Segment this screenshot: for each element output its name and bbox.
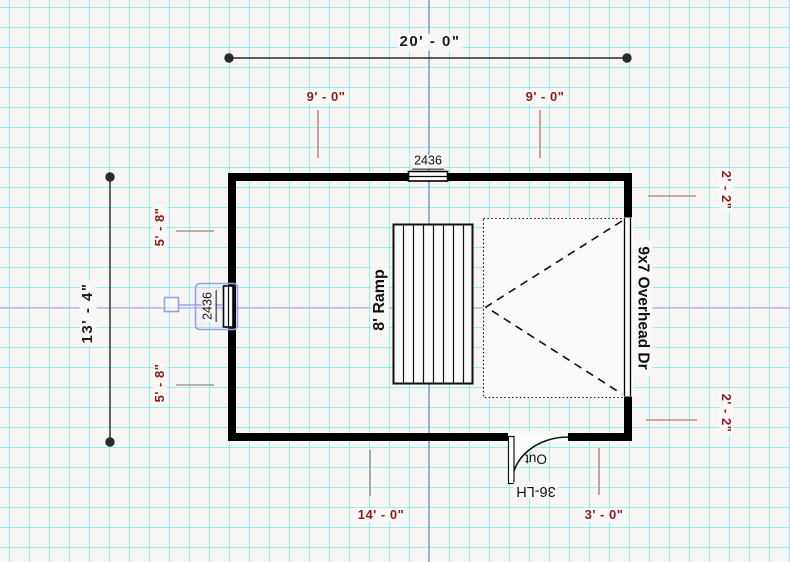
- drawing-canvas[interactable]: 20' - 0" 13' - 4" 9' - 0" 9' - 0" 5' - 8…: [0, 0, 790, 562]
- dimension-overall-height[interactable]: 13' - 4": [80, 280, 97, 345]
- dimension-left-lower-span[interactable]: 5' - 8": [153, 362, 167, 405]
- dimension-right-upper-span[interactable]: 2' - 2": [719, 169, 733, 212]
- dimension-top-left-span[interactable]: 9' - 0": [305, 90, 348, 104]
- dimension-top-right-span[interactable]: 9' - 0": [524, 90, 567, 104]
- width-dimension-line[interactable]: [225, 54, 631, 62]
- ramp-label[interactable]: 8' Ramp: [371, 267, 389, 333]
- ramp[interactable]: [394, 225, 473, 384]
- dimension-left-upper-span[interactable]: 5' - 8": [153, 206, 167, 249]
- top-window[interactable]: [409, 172, 448, 182]
- entry-door-leaf: [509, 437, 515, 484]
- height-dimension-line[interactable]: [106, 173, 114, 446]
- dimension-bottom-right-span[interactable]: 3' - 0": [583, 508, 626, 522]
- left-window-size-label[interactable]: 2436: [202, 290, 217, 322]
- dimension-bottom-left-span[interactable]: 14' - 0": [356, 508, 407, 522]
- top-window-size-label[interactable]: 2436: [412, 155, 444, 170]
- entry-door-swing-label[interactable]: Out: [523, 451, 549, 466]
- dimension-right-lower-span[interactable]: 2' - 2": [719, 392, 733, 435]
- entry-door-size-label[interactable]: 36-LH: [514, 482, 558, 498]
- plan-drawing-layer: [0, 0, 790, 562]
- selection-handle[interactable]: [165, 298, 179, 312]
- dimension-overall-width[interactable]: 20' - 0": [397, 34, 462, 51]
- overhead-door-region[interactable]: [484, 219, 624, 398]
- overhead-door-label[interactable]: 9x7 Overhead Dr: [633, 240, 652, 375]
